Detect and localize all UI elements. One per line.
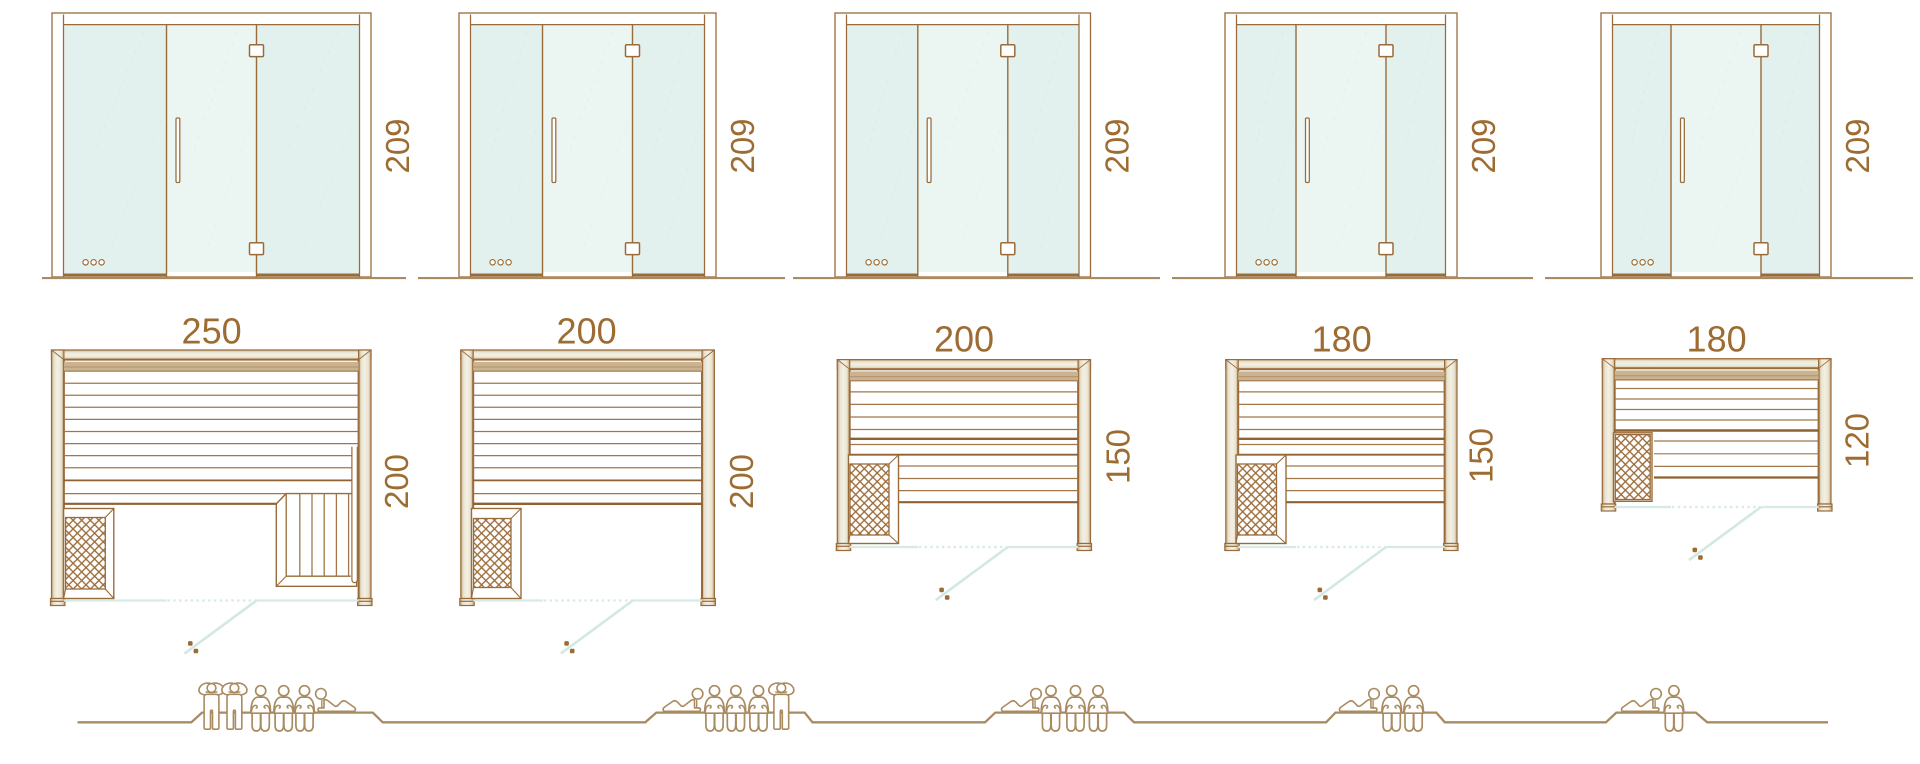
svg-text:200: 200 [934,319,994,360]
svg-text:200: 200 [557,311,617,352]
svg-text:180: 180 [1312,319,1372,360]
svg-text:200: 200 [723,454,760,509]
svg-text:209: 209 [1465,118,1502,173]
svg-text:250: 250 [182,311,242,352]
svg-text:150: 150 [1463,428,1500,483]
svg-text:209: 209 [1099,118,1136,173]
svg-text:180: 180 [1687,319,1747,360]
svg-text:209: 209 [1839,118,1876,173]
svg-text:150: 150 [1100,429,1137,484]
svg-text:120: 120 [1839,413,1876,468]
svg-text:209: 209 [379,118,416,173]
svg-text:200: 200 [378,454,415,509]
svg-text:209: 209 [724,118,761,173]
